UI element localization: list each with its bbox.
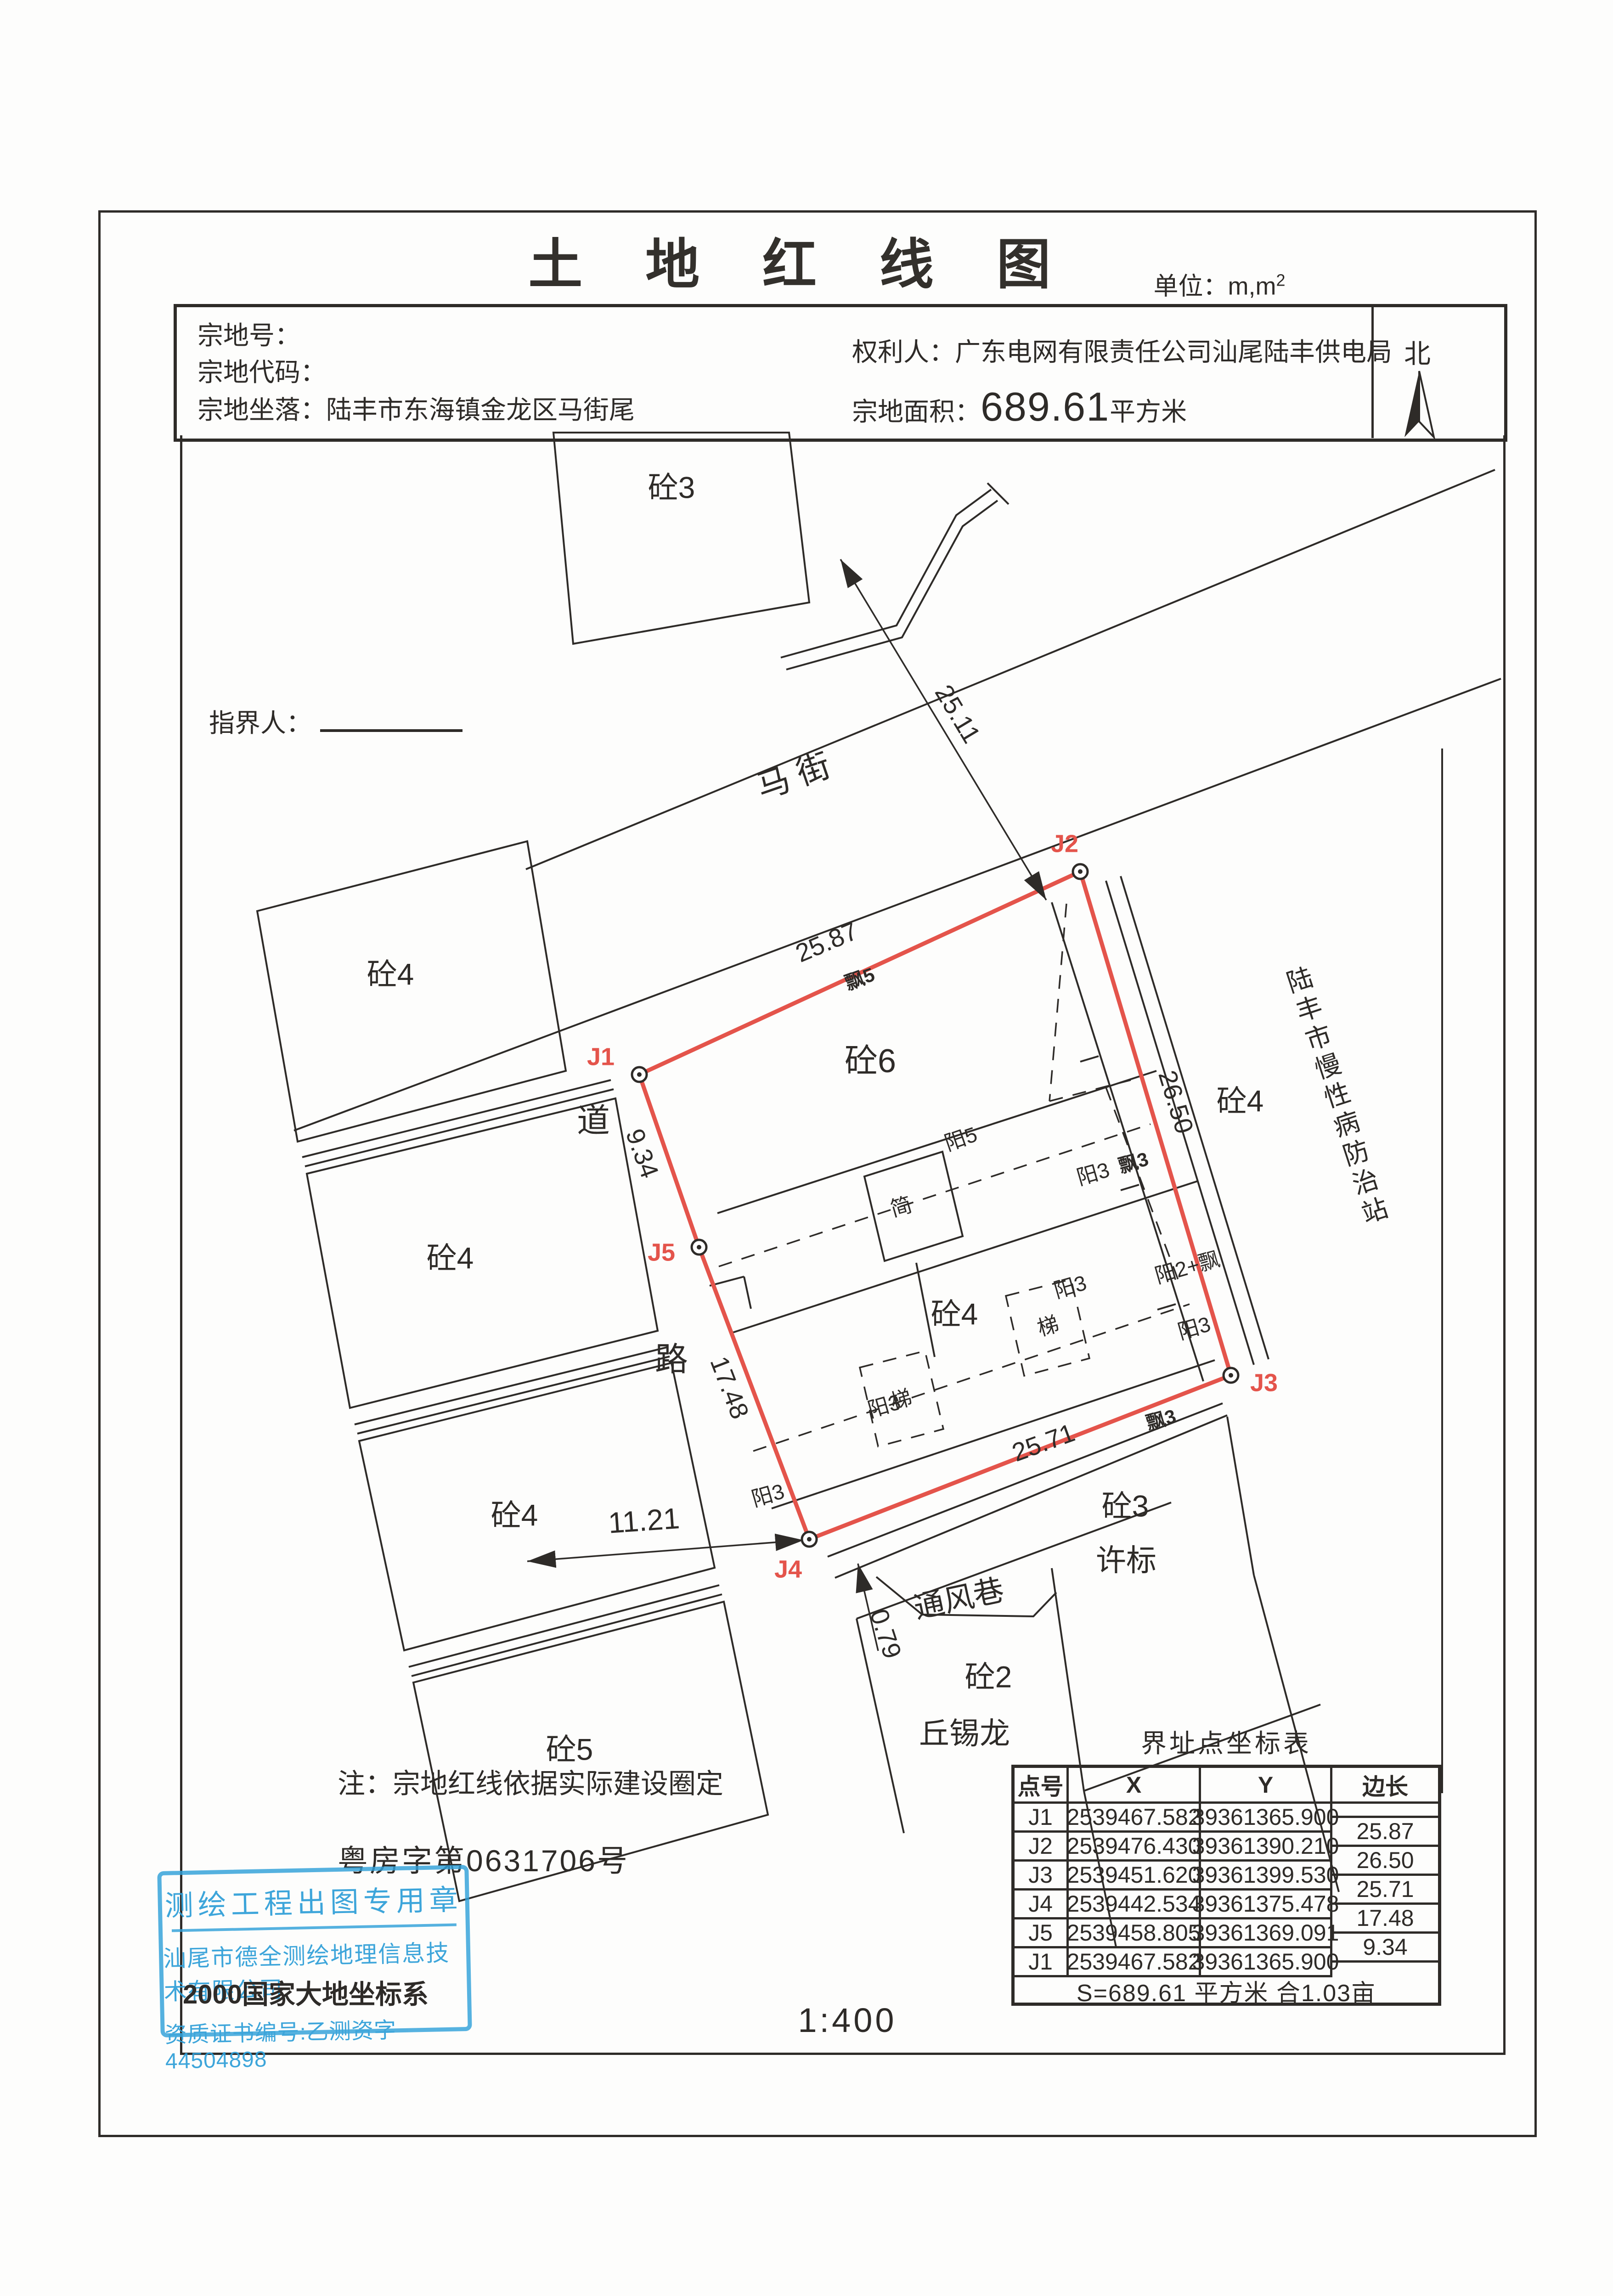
stamp-title: 测绘工程出图专用章: [164, 1876, 463, 1924]
dashed-eave-lines: [719, 904, 1190, 1451]
table-cell-y: 39361369.091: [1201, 1919, 1332, 1948]
table-cell-x: 2539451.620: [1069, 1862, 1201, 1891]
document-page: 土 地 红 线 图 单位：m,m2 宗地号： 宗地代码： 宗地坐落：陆丰市东海镇…: [0, 0, 1613, 2296]
surveyor-blank-line: [320, 699, 462, 732]
table-cell-x: 2539467.582: [1069, 1804, 1201, 1833]
building-top-tong3: [553, 433, 1009, 670]
boundary-point-j5: [692, 1240, 706, 1255]
stamp-divider: [172, 1924, 457, 1932]
table-cell-y: 39361375.478: [1201, 1891, 1332, 1919]
building-label-tong6: 砼6: [845, 1044, 896, 1079]
table-cell-x: 2539476.430: [1069, 1833, 1201, 1862]
table-col-x: X 2539467.582 2539476.430 2539451.620 25…: [1069, 1768, 1201, 1977]
road-label-dao: 道: [577, 1104, 610, 1139]
table-body: 点号 J1 J2 J3 J4 J5 J1 X 2539467.582 25394…: [1015, 1768, 1438, 1977]
surveyor-line: 指界人：: [209, 699, 462, 737]
table-header-y: Y: [1201, 1768, 1332, 1804]
table-cell-point: J1: [1015, 1804, 1069, 1833]
building-label-tong4-left-1: 砼4: [367, 958, 414, 990]
table-col-point: 点号 J1 J2 J3 J4 J5 J1: [1015, 1768, 1069, 1977]
table-cell-point: J2: [1015, 1833, 1069, 1862]
table-cell-y: 39361365.900: [1201, 1948, 1332, 1977]
label-qiuxilong: 丘锡龙: [919, 1717, 1010, 1749]
parcel-code-label: 宗地代码：: [197, 358, 326, 387]
page-title: 土 地 红 线 图: [528, 237, 1074, 294]
table-cell-point: J5: [1015, 1919, 1069, 1948]
parcel-interior-walls: [710, 876, 1269, 1508]
building-label-tong3-bottom: 砼3: [1102, 1490, 1149, 1522]
point-label-j5: J5: [648, 1240, 675, 1266]
unit-text: 单位：m,m: [1154, 273, 1276, 300]
building-label-tong4-left-3: 砼4: [491, 1499, 538, 1531]
datum-label: 2000国家大地坐标系: [183, 1980, 429, 2009]
boundary-point-j2: [1073, 864, 1088, 879]
table-col-length: 边长 25.87 26.50 25.71 17.48 9.34: [1332, 1768, 1438, 1977]
table-cell-length-spacer: [1332, 1804, 1438, 1818]
dim-11-21: 11.21: [607, 1503, 681, 1539]
point-label-j3: J3: [1250, 1370, 1278, 1396]
table-cell-point: J1: [1015, 1948, 1069, 1977]
building-label-tong3-top: 砼3: [648, 472, 695, 503]
parcel-no-label: 宗地号：: [197, 321, 300, 350]
table-header-point: 点号: [1015, 1768, 1069, 1804]
table-cell-y: 39361399.530: [1201, 1862, 1332, 1891]
north-arrow-icon: [1404, 371, 1434, 437]
table-cell-length: 17.48: [1332, 1905, 1438, 1934]
table-cell-point: J4: [1015, 1891, 1069, 1919]
table-footer-area: S=689.61 平方米 合1.03亩: [1015, 1977, 1438, 2004]
table-cell-length: 9.34: [1332, 1934, 1438, 1963]
table-cell-x: 2539458.805: [1069, 1919, 1201, 1948]
table-cell-x: 2539467.582: [1069, 1948, 1201, 1977]
table-cell-y: 39361365.900: [1201, 1804, 1332, 1833]
point-label-j4: J4: [774, 1557, 802, 1583]
point-label-j2: J2: [1051, 831, 1078, 857]
building-label-tong4-center: 砼4: [931, 1298, 978, 1330]
point-label-j1: J1: [587, 1044, 615, 1070]
left-buildings: [257, 841, 768, 1901]
table-cell-x: 2539442.534: [1069, 1891, 1201, 1919]
area-value: 689.61: [981, 384, 1110, 429]
boundary-point-j4: [802, 1532, 817, 1547]
building-label-tong4-left-2: 砼4: [427, 1242, 474, 1274]
north-label: 北: [1404, 341, 1431, 369]
boundary-point-j3: [1224, 1368, 1238, 1383]
parcel-location: 宗地坐落：陆丰市东海镇金龙区马街尾: [197, 396, 635, 424]
note-redline: 注：宗地红线依据实际建设圈定: [338, 1769, 723, 1799]
unit-label: 单位：m,m2: [1154, 272, 1286, 300]
table-header-x: X: [1069, 1768, 1201, 1804]
survey-stamp: 测绘工程出图专用章 汕尾市德全测绘地理信息技术有限公司 资质证书编号:乙测资字4…: [157, 1865, 472, 2037]
stamp-cert-no: 资质证书编号:乙测资字44504898: [164, 2010, 468, 2074]
unit-superscript: 2: [1276, 271, 1285, 290]
table-cell-y: 39361390.210: [1201, 1833, 1332, 1862]
red-parcel-boundary: [639, 872, 1231, 1539]
road-label-lu: 路: [655, 1343, 688, 1378]
table-title: 界址点坐标表: [1011, 1723, 1441, 1760]
table-header-length: 边长: [1332, 1768, 1438, 1804]
area-unit: 平方米: [1110, 397, 1187, 426]
building-label-tong5: 砼5: [546, 1733, 593, 1765]
table-cell-length: 25.87: [1332, 1818, 1438, 1847]
rights-holder: 权利人：广东电网有限责任公司汕尾陆丰供电局: [852, 338, 1392, 366]
boundary-point-j1: [632, 1067, 647, 1082]
building-label-tong4-right: 砼4: [1217, 1085, 1264, 1117]
map-scale: 1:400: [798, 2003, 897, 2038]
table-cell-point: J3: [1015, 1862, 1069, 1891]
table-cell-length: 26.50: [1332, 1847, 1438, 1876]
table-col-y: Y 39361365.900 39361390.210 39361399.530…: [1201, 1768, 1332, 1977]
label-xubiao: 许标: [1096, 1544, 1156, 1576]
building-label-tong2: 砼2: [965, 1661, 1012, 1693]
parcel-area: 宗地面积：689.61平方米: [852, 385, 1187, 429]
area-label: 宗地面积：: [852, 397, 981, 426]
coordinate-table: 点号 J1 J2 J3 J4 J5 J1 X 2539467.582 25394…: [1011, 1765, 1441, 2006]
table-cell-length: 25.71: [1332, 1876, 1438, 1905]
surveyor-label: 指界人：: [209, 709, 312, 737]
